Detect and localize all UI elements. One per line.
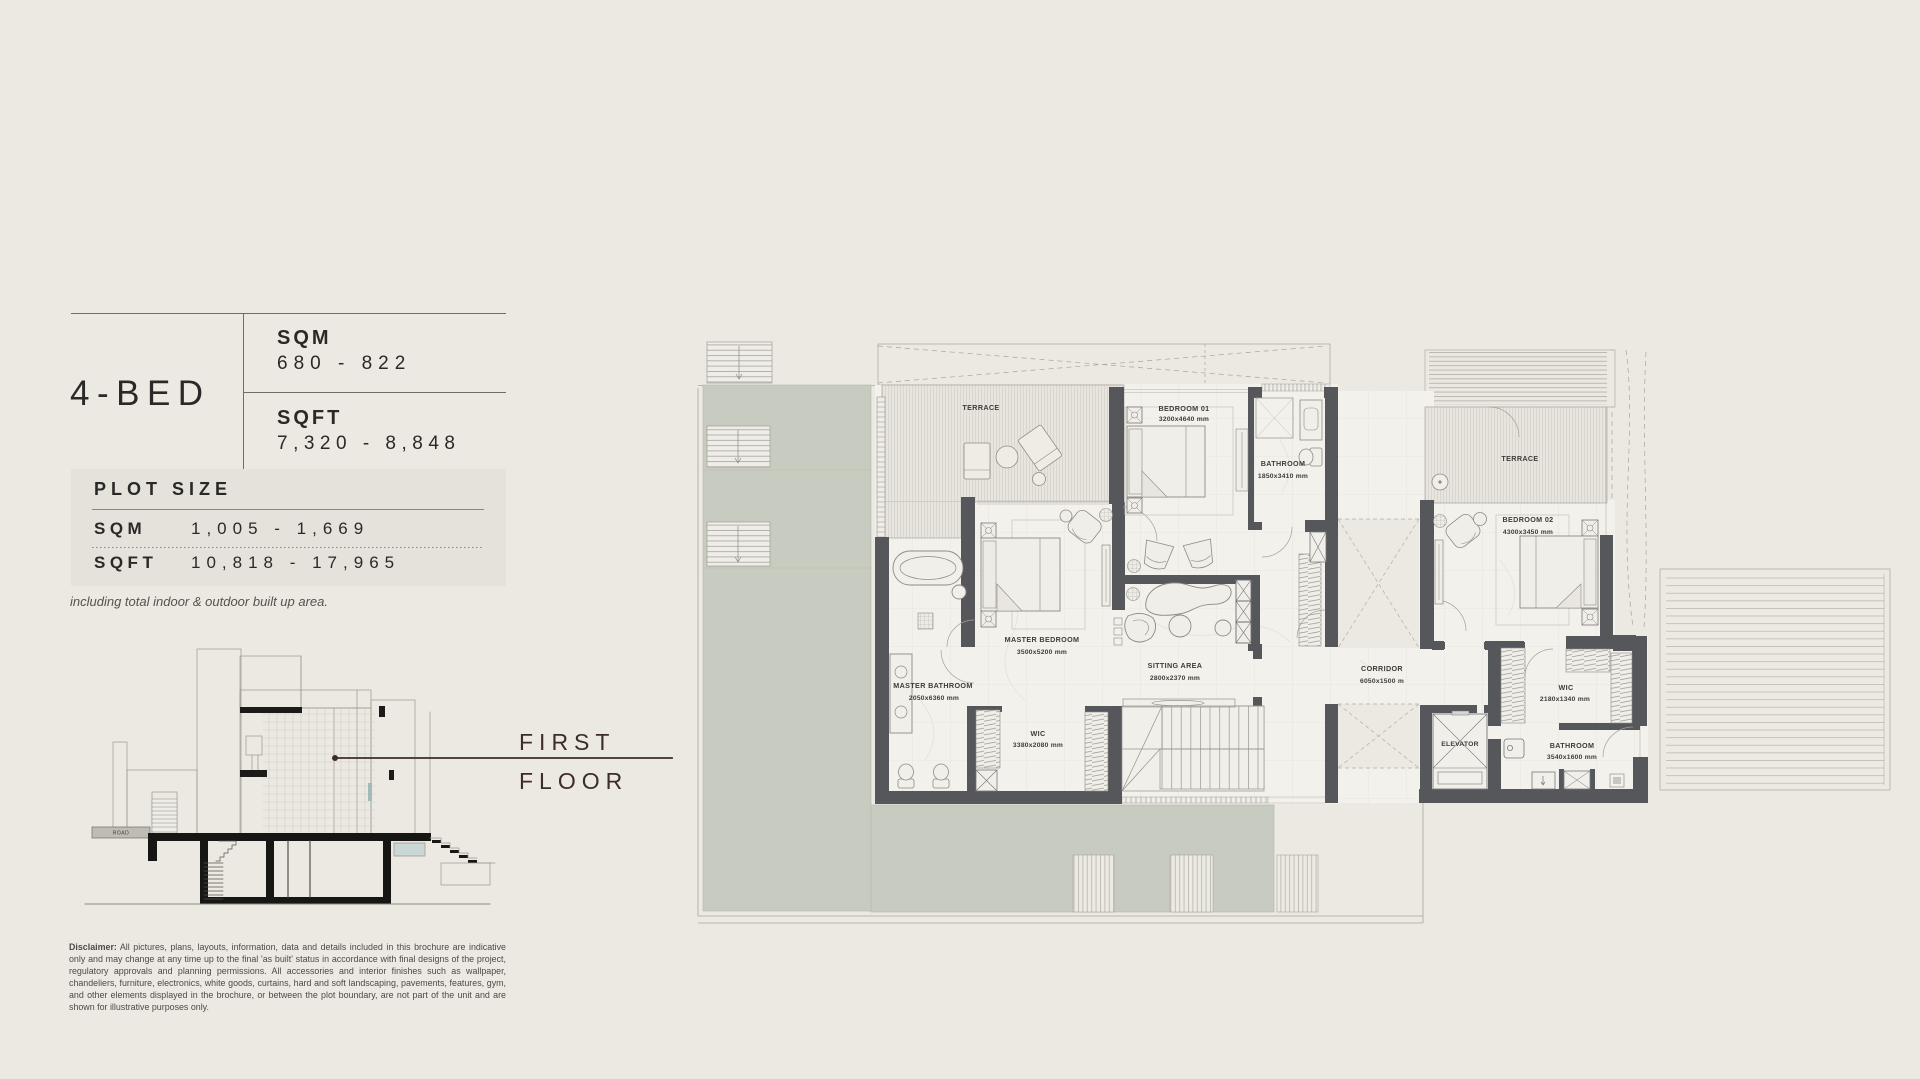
svg-text:CORRIDOR: CORRIDOR <box>1361 664 1403 673</box>
svg-text:MASTER BEDROOM: MASTER BEDROOM <box>1005 635 1080 644</box>
svg-text:TERRACE: TERRACE <box>1501 454 1538 463</box>
svg-text:2800x2370 mm: 2800x2370 mm <box>1150 675 1200 682</box>
svg-text:2050x6360 mm: 2050x6360 mm <box>909 695 959 702</box>
svg-text:ROAD: ROAD <box>113 831 129 837</box>
svg-text:MASTER BATHROOM: MASTER BATHROOM <box>893 681 972 690</box>
svg-text:BATHROOM: BATHROOM <box>1550 741 1595 750</box>
svg-text:1850x3410 mm: 1850x3410 mm <box>1258 473 1308 480</box>
svg-text:BEDROOM 02: BEDROOM 02 <box>1502 515 1553 524</box>
svg-text:4300x3450 mm: 4300x3450 mm <box>1503 529 1553 536</box>
svg-text:SITTING AREA: SITTING AREA <box>1148 661 1203 670</box>
svg-text:TERRACE: TERRACE <box>962 403 999 412</box>
svg-text:WIC: WIC <box>1558 683 1573 692</box>
svg-text:ELEVATOR: ELEVATOR <box>1441 741 1478 748</box>
svg-text:3380x2080 mm: 3380x2080 mm <box>1013 742 1063 749</box>
svg-text:BEDROOM 01: BEDROOM 01 <box>1158 404 1209 413</box>
svg-text:3500x5200 mm: 3500x5200 mm <box>1017 649 1067 656</box>
svg-text:3200x4640 mm: 3200x4640 mm <box>1159 416 1209 423</box>
svg-text:2180x1340 mm: 2180x1340 mm <box>1540 696 1590 703</box>
svg-text:6050x1500 m: 6050x1500 m <box>1360 678 1404 685</box>
svg-text:BATHROOM: BATHROOM <box>1261 459 1306 468</box>
svg-text:WIC: WIC <box>1030 729 1045 738</box>
svg-text:3540x1600 mm: 3540x1600 mm <box>1547 754 1597 761</box>
